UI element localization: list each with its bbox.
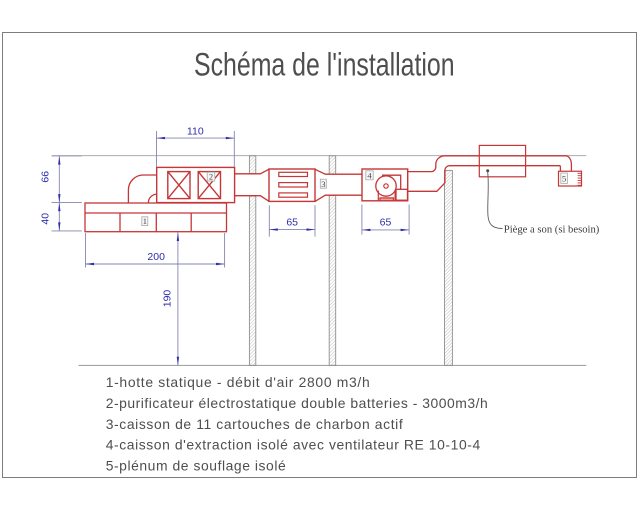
svg-text:2: 2 [209, 172, 213, 182]
svg-text:4-caisson d'extraction isolé a: 4-caisson d'extraction isolé avec ventil… [106, 437, 481, 453]
svg-text:1-hotte statique - débit d'air: 1-hotte statique - débit d'air 2800 m3/h [106, 374, 370, 390]
svg-text:190: 190 [162, 290, 174, 308]
svg-text:2-purificateur électrostatique: 2-purificateur électrostatique double ba… [106, 395, 488, 411]
svg-text:110: 110 [187, 125, 204, 137]
svg-text:1: 1 [143, 216, 147, 226]
svg-text:5: 5 [562, 174, 566, 184]
svg-text:3-caisson de 11 cartouches de: 3-caisson de 11 cartouches de charbon ac… [106, 416, 403, 432]
svg-text:3: 3 [321, 179, 325, 189]
svg-text:200: 200 [147, 251, 165, 263]
svg-text:65: 65 [380, 217, 392, 229]
svg-text:Schéma de l'installation: Schéma de l'installation [194, 46, 455, 82]
svg-text:40: 40 [39, 213, 51, 225]
svg-text:66: 66 [39, 171, 51, 183]
svg-text:5-plénum de souflage isolé: 5-plénum de souflage isolé [106, 457, 286, 473]
svg-text:65: 65 [286, 217, 298, 229]
svg-text:Piège a son (si besoin): Piège a son (si besoin) [504, 223, 600, 235]
